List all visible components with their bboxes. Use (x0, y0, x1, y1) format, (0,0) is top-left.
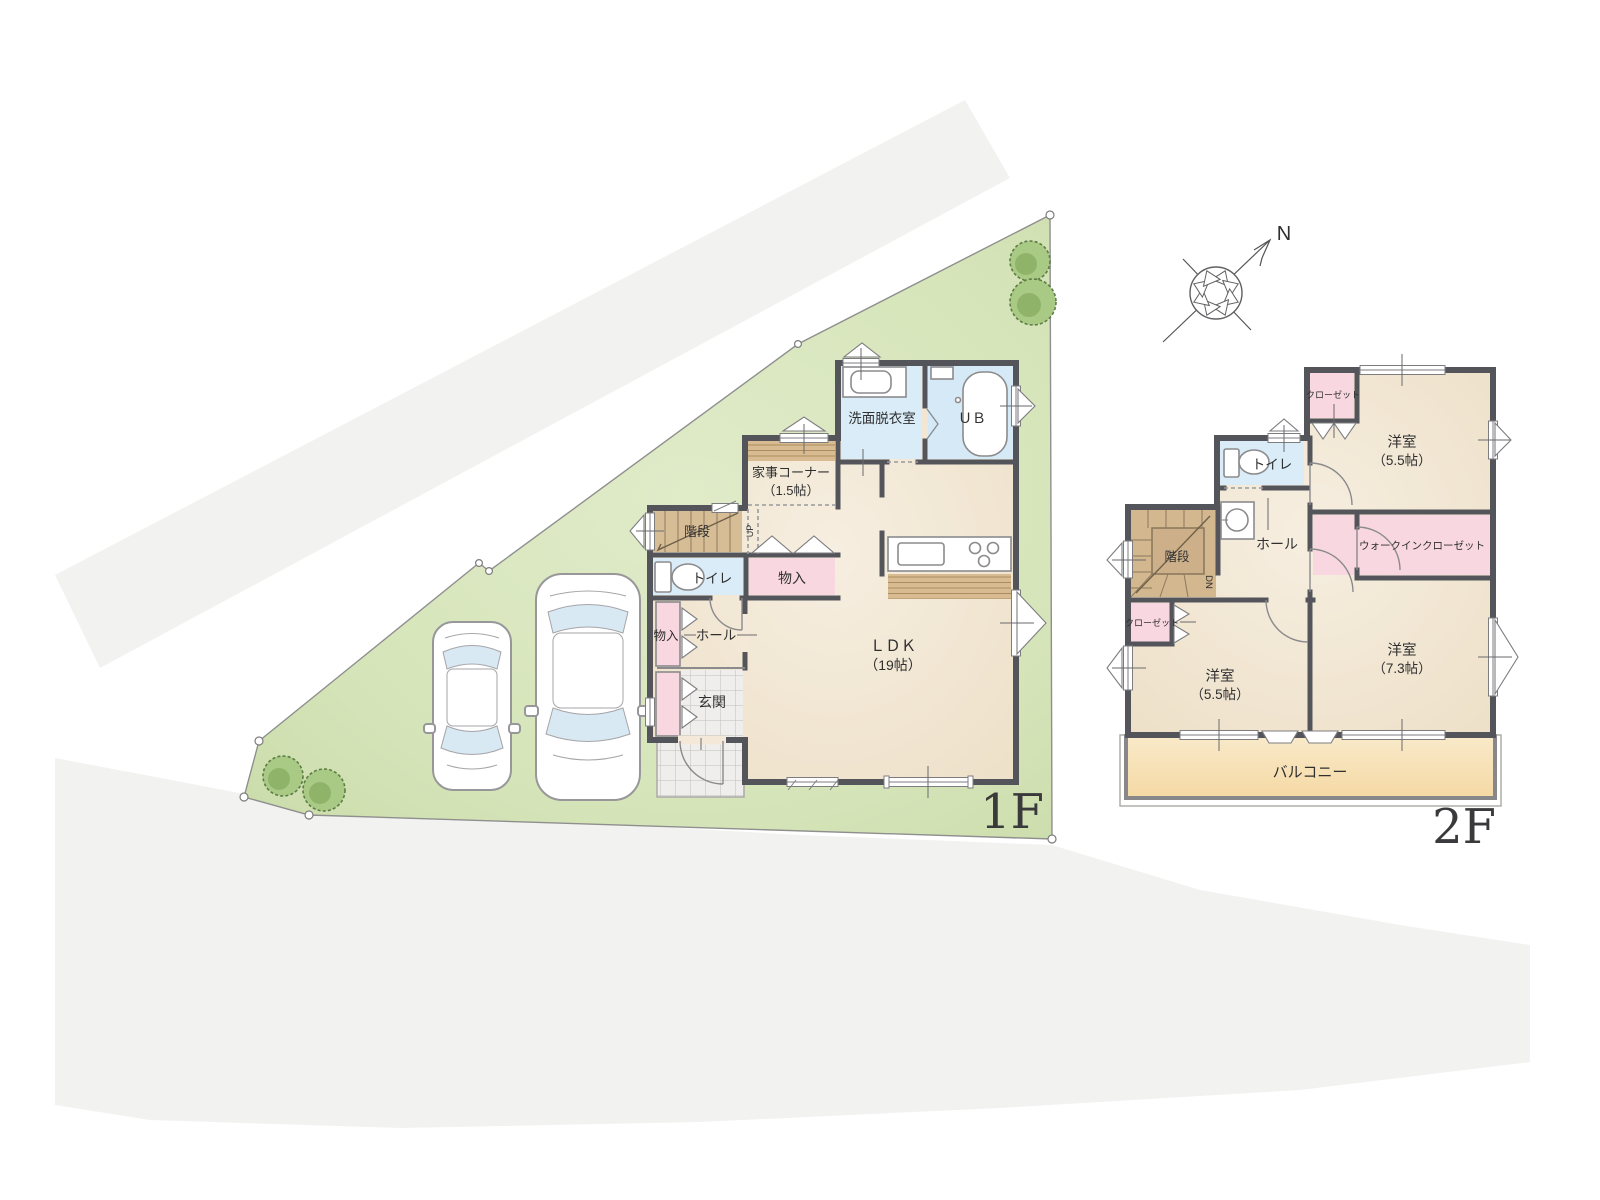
stairs-down-label: DN (1203, 575, 1214, 589)
tree (1010, 241, 1050, 281)
floor-label-2f: 2F (1432, 799, 1496, 855)
compass: N (1163, 223, 1291, 342)
room-label-bedroom2: 洋室 (1206, 668, 1235, 685)
room-label-ldk: ＬＤＫ (870, 638, 917, 655)
utility-counter (748, 441, 835, 461)
floor-plan-canvas: 洗面脱衣室 ＵＢ 家事コーナー （1.5帖） 階段 UP トイレ 物入 物入 ホ… (0, 0, 1600, 1200)
house-2f: クローゼット 洋室 （5.5帖） トイレ ホール 階段 DN ウォークインクロー… (1107, 354, 1518, 855)
room-label-bath: ＵＢ (958, 410, 986, 426)
tree (303, 769, 345, 811)
compass-rose (1190, 267, 1242, 319)
car-large (525, 574, 651, 800)
room-label-wic: ウォークインクローゼット (1359, 540, 1485, 552)
car-small (424, 622, 520, 790)
room-label-toilet-2f: トイレ (1252, 457, 1293, 472)
washroom-sink (843, 367, 906, 397)
room-label-toilet-1f: トイレ (692, 571, 733, 586)
room-label-stairs-1f: 階段 (684, 524, 710, 539)
north-label: N (1277, 223, 1291, 245)
tree (1010, 279, 1056, 325)
room-label-washroom: 洗面脱衣室 (848, 410, 916, 426)
kitchen-counter (888, 537, 1011, 571)
room-label-bedroom3: 洋室 (1388, 642, 1417, 659)
room-label-storage-hall: 物入 (653, 629, 679, 643)
house-1f: 洗面脱衣室 ＵＢ 家事コーナー （1.5帖） 階段 UP トイレ 物入 物入 ホ… (630, 343, 1046, 840)
floor-label-1f: 1F (980, 784, 1044, 840)
room-label-utility: 家事コーナー (752, 465, 830, 480)
kitchen-floor-strip (888, 574, 1011, 599)
room-label-stairs-2f: 階段 (1164, 549, 1189, 564)
basin-2f (1221, 502, 1254, 539)
room-label-bedroom2-size: （5.5帖） (1190, 687, 1249, 702)
room-label-balcony: バルコニー (1273, 764, 1348, 781)
stairs-up-label: UP (745, 525, 755, 538)
closet-hall-b (656, 672, 680, 736)
room-label-entrance: 玄関 (698, 694, 726, 710)
floor-plan-page: 洗面脱衣室 ＵＢ 家事コーナー （1.5帖） 階段 UP トイレ 物入 物入 ホ… (0, 0, 1600, 1200)
room-label-bedroom1: 洋室 (1388, 434, 1417, 451)
room-label-ldk-size: （19帖） (864, 657, 922, 673)
room-label-hall-1f: ホール (696, 628, 737, 643)
room-label-storage-1f: 物入 (778, 570, 806, 586)
room-label-utility-size: （1.5帖） (762, 483, 819, 498)
tree (263, 756, 303, 796)
room-label-closet-b: クローゼット (1125, 617, 1179, 628)
room-label-hall-2f: ホール (1256, 536, 1298, 552)
room-label-bedroom3-size: （7.3帖） (1372, 661, 1431, 676)
room-label-bedroom1-size: （5.5帖） (1372, 453, 1431, 468)
room-label-closet-a: クローゼット (1306, 389, 1360, 400)
